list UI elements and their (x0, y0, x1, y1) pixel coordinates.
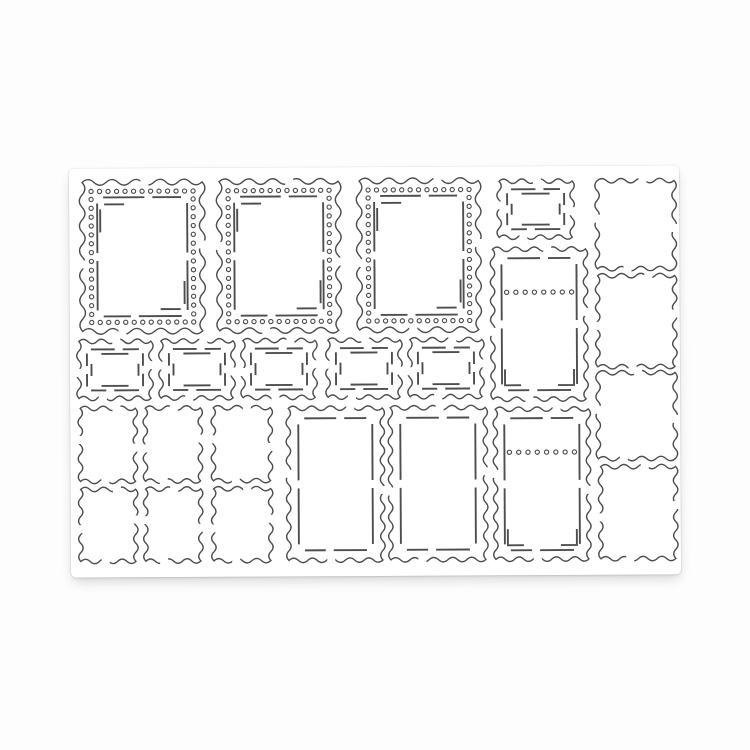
stamp-plain-small-3 (209, 403, 275, 485)
stamp-tall-dotted-1 (488, 245, 590, 404)
stamp-plain-small-1 (76, 404, 140, 486)
stamp-plain-small-6 (209, 484, 275, 565)
stamp-large-perforated-1 (77, 177, 208, 337)
stamp-plain-small-4 (76, 485, 140, 566)
stamp-plain-right-4 (596, 462, 680, 563)
stamp-tall-frame-2 (386, 403, 490, 564)
stamp-small-frame-2 (157, 336, 238, 402)
stamp-tall-frame-1 (284, 404, 387, 565)
stamp-small-frame-5 (406, 335, 487, 401)
stamp-dies-canvas (69, 165, 681, 577)
stamp-plain-right-1 (593, 176, 679, 273)
product-photo (0, 0, 750, 750)
stamp-plain-right-3 (594, 368, 680, 463)
stamp-plain-small-2 (141, 404, 205, 486)
stamp-tall-dotted-2 (491, 405, 593, 564)
stamp-small-frame-1 (75, 337, 156, 403)
stamp-plain-right-2 (593, 271, 679, 371)
stamp-small-frame-4 (324, 336, 405, 402)
stamp-small-frame-top (495, 177, 577, 242)
die-sheet (69, 165, 681, 577)
stamp-plain-small-5 (141, 485, 205, 566)
stamp-large-perforated-2 (214, 176, 344, 336)
stamp-small-frame-3 (239, 336, 320, 402)
stamp-large-perforated-3 (354, 175, 484, 335)
